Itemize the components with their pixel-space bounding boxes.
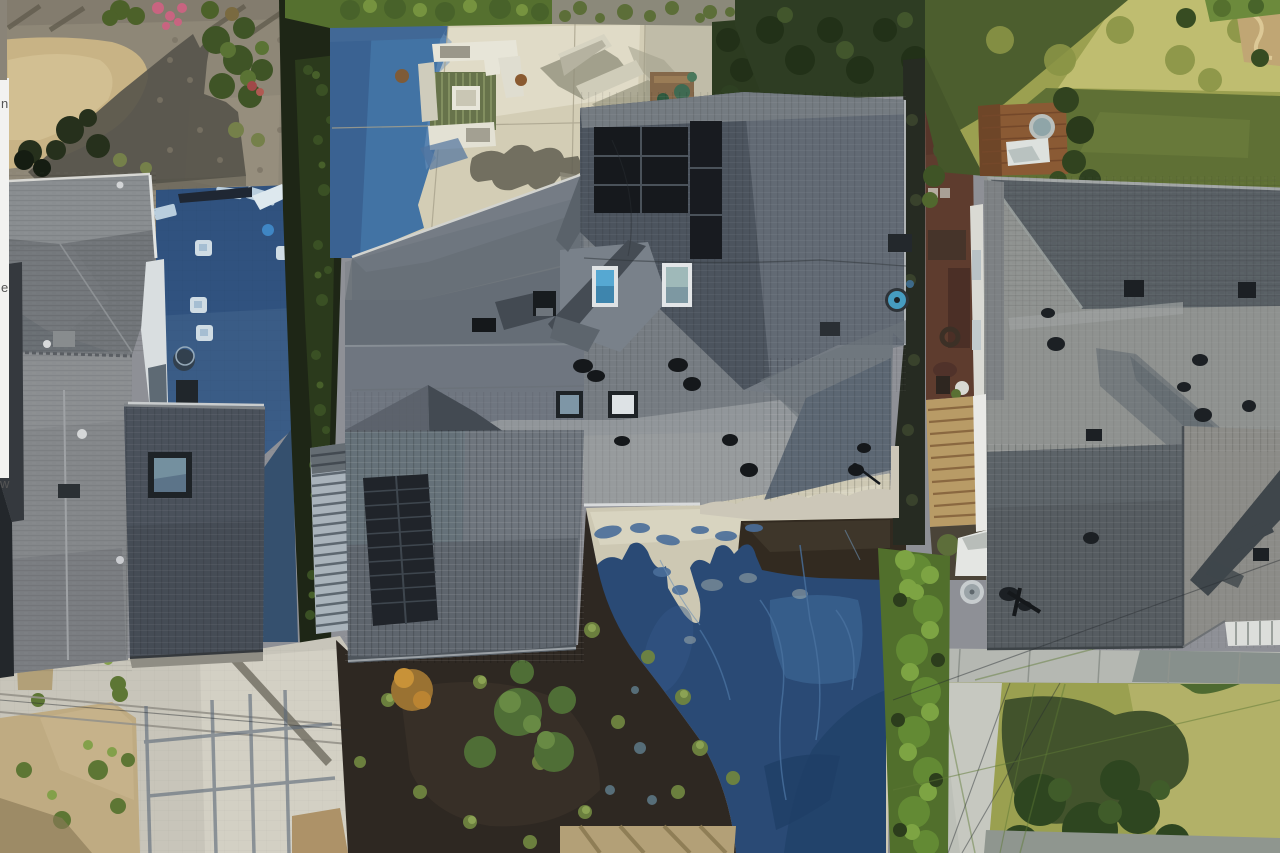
svg-text:w: w [0, 476, 10, 491]
svg-text:e: e [1, 280, 8, 295]
svg-text:n: n [1, 96, 8, 111]
